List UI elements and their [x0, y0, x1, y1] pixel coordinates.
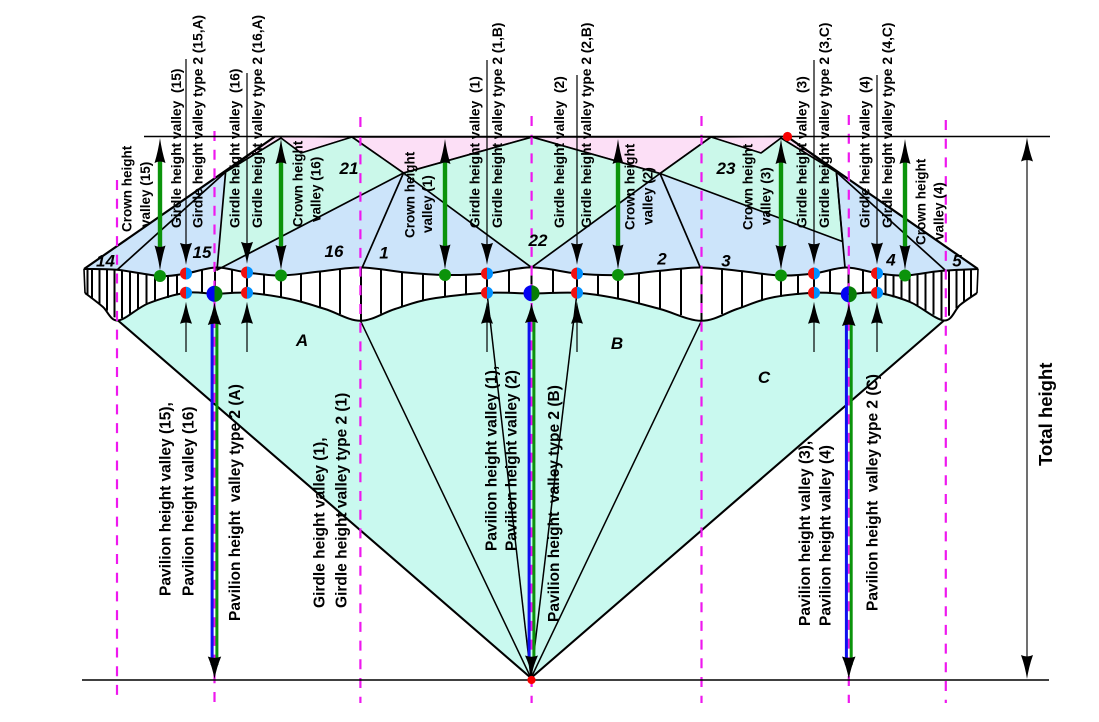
svg-text:Pavilion height valley type 2: Pavilion height valley type 2 (C)	[865, 374, 882, 611]
svg-text:Crown height: Crown height	[291, 140, 306, 227]
svg-text:Girdle height valley (2): Girdle height valley (2)	[552, 76, 567, 228]
svg-text:22: 22	[528, 231, 548, 250]
svg-text:valley (16): valley (16)	[309, 157, 324, 222]
svg-text:4: 4	[885, 251, 896, 270]
svg-text:3: 3	[721, 252, 731, 271]
svg-text:Pavilion height valley (1),: Pavilion height valley (1),	[484, 366, 501, 551]
svg-text:Girdle height valley type 2 (1: Girdle height valley type 2 (15,A)	[191, 15, 206, 228]
svg-text:valley (2): valley (2)	[641, 167, 656, 225]
svg-text:valley (15): valley (15)	[138, 162, 153, 227]
svg-text:Girdle height valley type 2 (4: Girdle height valley type 2 (4,C)	[880, 23, 895, 228]
svg-text:2: 2	[656, 250, 667, 269]
svg-text:1: 1	[379, 244, 388, 263]
svg-text:Girdle height valley (4): Girdle height valley (4)	[858, 76, 873, 228]
svg-text:Girdle height valley type 2 (1: Girdle height valley type 2 (1,B)	[490, 23, 505, 228]
svg-text:Crown height: Crown height	[623, 143, 638, 230]
svg-text:Pavilion height valley (3),: Pavilion height valley (3),	[797, 441, 814, 626]
svg-text:A: A	[295, 331, 308, 350]
svg-text:16: 16	[325, 242, 344, 261]
svg-text:valley (4): valley (4)	[932, 182, 947, 240]
svg-text:Pavilion height valley type 2: Pavilion height valley type 2 (A)	[227, 384, 244, 621]
svg-text:Pavilion height valley type 2: Pavilion height valley type 2 (B)	[546, 385, 563, 622]
svg-text:Pavilion height valley (2): Pavilion height valley (2)	[504, 370, 521, 551]
svg-text:21: 21	[339, 159, 359, 178]
svg-text:Pavilion height valley (16): Pavilion height valley (16)	[181, 406, 198, 596]
svg-text:valley (1): valley (1)	[420, 175, 435, 233]
svg-text:Crown height: Crown height	[914, 158, 929, 245]
svg-text:Girdle height valley (3): Girdle height valley (3)	[795, 76, 810, 228]
svg-text:Crown height: Crown height	[403, 151, 418, 238]
svg-text:C: C	[758, 368, 771, 387]
svg-text:Total height: Total height	[1035, 363, 1056, 466]
svg-text:Pavilion height valley (4): Pavilion height valley (4)	[818, 445, 835, 626]
svg-text:Crown height: Crown height	[741, 143, 756, 230]
svg-text:valley (3): valley (3)	[759, 167, 774, 225]
svg-text:Girdle height valley type 2 (1: Girdle height valley type 2 (16,A)	[250, 15, 265, 228]
svg-text:15: 15	[193, 243, 212, 262]
svg-text:Girdle height valley (15): Girdle height valley (15)	[169, 69, 184, 228]
svg-text:5: 5	[952, 252, 962, 271]
svg-text:Girdle height valley (16): Girdle height valley (16)	[228, 69, 243, 228]
svg-text:23: 23	[716, 159, 736, 178]
svg-text:Girdle height valley type 2 (3: Girdle height valley type 2 (3,C)	[817, 23, 832, 228]
svg-text:Girdle height valley type 2 (2: Girdle height valley type 2 (2,B)	[579, 23, 594, 228]
svg-text:Girdle height valley (1): Girdle height valley (1)	[468, 76, 483, 228]
svg-text:Crown height: Crown height	[120, 145, 135, 232]
svg-text:B: B	[611, 334, 623, 353]
svg-text:Pavilion height valley (15),: Pavilion height valley (15),	[158, 402, 175, 596]
svg-text:14: 14	[96, 252, 115, 271]
svg-text:Girdle height valley (1),: Girdle height valley (1),	[312, 437, 329, 608]
svg-text:Girdle height valley type 2 (1: Girdle height valley type 2 (1)	[334, 393, 351, 608]
